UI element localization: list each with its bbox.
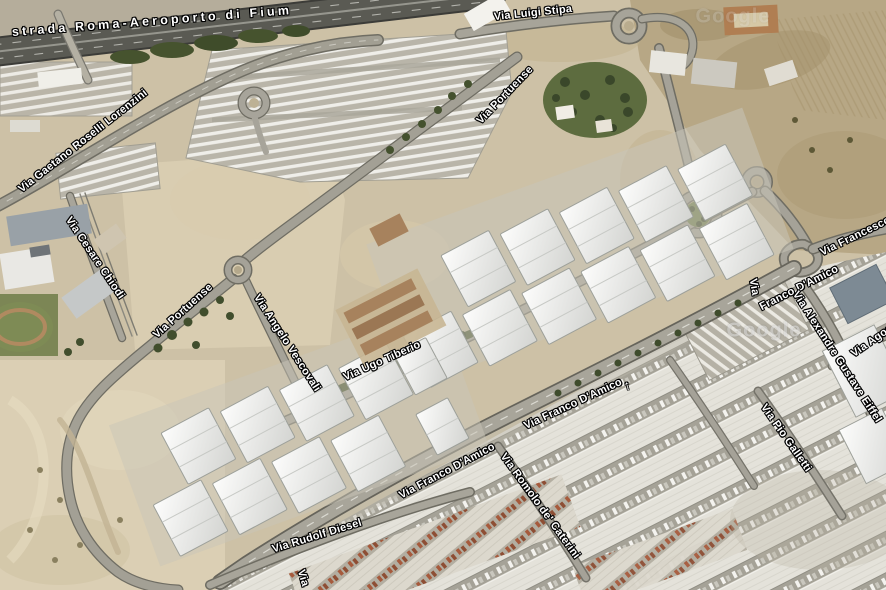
- satellite-map[interactable]: strada Roma-Aeroporto di Fium Via Luigi …: [0, 0, 886, 590]
- satellite-imagery: [0, 0, 886, 590]
